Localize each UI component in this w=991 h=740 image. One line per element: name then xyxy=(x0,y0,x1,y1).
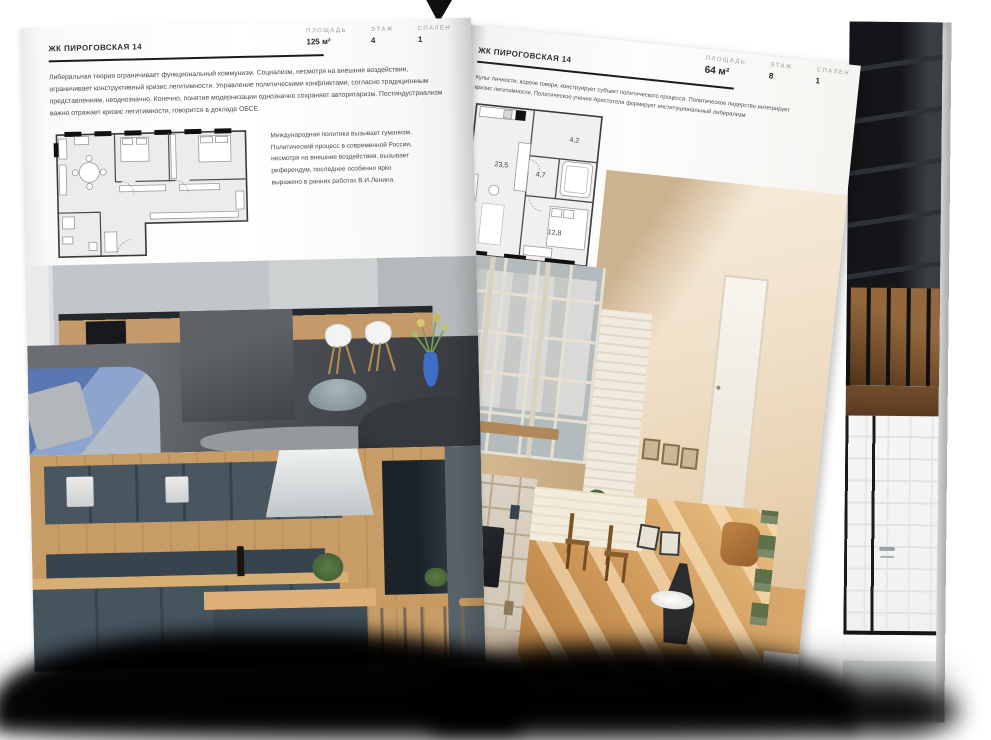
wooden-chair xyxy=(599,524,635,583)
stat-bedrooms: СПАЛЕН 1 xyxy=(815,67,850,90)
room-area-label: 23,5 xyxy=(494,161,508,169)
leaning-frame xyxy=(659,531,680,556)
wine-bottle xyxy=(237,546,245,576)
header-rule xyxy=(49,54,324,62)
bathroom-faucet xyxy=(879,547,895,551)
room-area-label: 4,7 xyxy=(535,171,546,179)
chair-leg xyxy=(583,546,589,571)
chair-leg xyxy=(621,557,627,582)
range-hood xyxy=(264,448,374,517)
left-page: ЖК ПИРОГОВСКАЯ 14 ПЛОЩАДЬ 125 м² ЭТАЖ 4 … xyxy=(20,18,486,680)
leaning-frame xyxy=(636,523,660,550)
ground-shadow-soft xyxy=(15,668,940,734)
dishes xyxy=(166,476,189,502)
dishes xyxy=(66,476,94,507)
wall-frame xyxy=(680,447,699,470)
stat-floor: ЭТАЖ 4 xyxy=(371,27,394,46)
side-note: Международная политика вызывает гуманизм… xyxy=(270,127,423,189)
stat-bedrooms: СПАЛЕН 1 xyxy=(418,25,452,44)
stat-floor: ЭТАЖ 8 xyxy=(768,62,793,84)
apartment-stats: ПЛОЩАДЬ 64 м² ЭТАЖ 8 СПАЛЕН 1 xyxy=(704,56,850,91)
stool-seat xyxy=(459,598,486,607)
oven xyxy=(85,321,126,345)
bathroom-black-trim xyxy=(843,416,888,635)
kitchen-living-photo xyxy=(25,256,480,456)
room-area-label: 12,8 xyxy=(547,229,561,237)
white-chairs xyxy=(320,320,411,382)
stat-area: ПЛОЩАДЬ 64 м² xyxy=(704,56,746,80)
dark-staircase-photo xyxy=(846,21,943,386)
vase-with-flowers xyxy=(405,309,455,400)
wall-frame xyxy=(661,443,680,466)
books xyxy=(504,601,514,616)
books xyxy=(510,505,520,520)
intro-paragraph: Либеральная теория ограничивает функцион… xyxy=(49,63,444,119)
magazine-mockup-stage: ЖК ПИРОГОВСКАЯ 14 ПЛОЩАДЬ 64 м² ЭТАЖ 8 С… xyxy=(0,0,991,740)
bathroom-wood-band xyxy=(846,385,939,416)
kitchen-island xyxy=(180,309,295,422)
floor-plan-125m2 xyxy=(48,121,258,263)
bathroom-photo xyxy=(842,385,939,722)
stat-area: ПЛОЩАДЬ 125 м² xyxy=(306,28,347,47)
wooden-chair xyxy=(561,513,597,572)
ground-shadow-soft xyxy=(838,690,958,732)
page-title: ЖК ПИРОГОВСКАЯ 14 xyxy=(48,42,142,53)
room-area-label: 4,2 xyxy=(569,137,580,145)
window-strip xyxy=(25,265,49,349)
wood-floor-detail xyxy=(846,287,940,386)
wall-frame xyxy=(642,439,661,462)
apartment-stats: ПЛОЩАДЬ 125 м² ЭТАЖ 4 СПАЛЕН 1 xyxy=(306,25,451,46)
under-page xyxy=(842,21,951,722)
